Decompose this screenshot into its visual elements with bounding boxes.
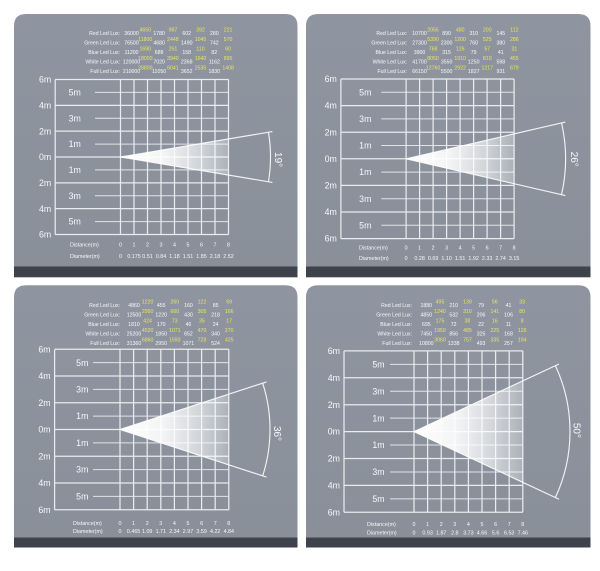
- svg-text:1m: 1m: [372, 440, 384, 450]
- svg-text:Blue Led Lux:: Blue Led Lux:: [88, 322, 120, 328]
- svg-text:5m: 5m: [69, 88, 81, 98]
- svg-text:4m: 4m: [39, 204, 51, 214]
- svg-text:Blue Led Lux:: Blue Led Lux:: [380, 322, 412, 328]
- svg-text:7: 7: [508, 522, 511, 528]
- svg-text:6m: 6m: [38, 505, 50, 515]
- svg-text:3m: 3m: [69, 191, 81, 201]
- svg-text:425: 425: [225, 338, 234, 344]
- svg-text:3.73: 3.73: [463, 530, 473, 536]
- svg-text:0m: 0m: [328, 427, 340, 437]
- svg-text:210: 210: [449, 303, 458, 309]
- svg-text:2535: 2535: [195, 66, 207, 72]
- svg-text:221: 221: [224, 28, 233, 34]
- svg-text:35: 35: [199, 319, 205, 325]
- svg-text:4: 4: [467, 522, 470, 528]
- svg-text:4m: 4m: [38, 478, 50, 488]
- svg-text:1240: 1240: [434, 309, 446, 315]
- svg-text:2.52: 2.52: [223, 254, 233, 260]
- svg-text:2m: 2m: [38, 451, 50, 461]
- svg-text:218: 218: [211, 312, 220, 318]
- svg-text:931: 931: [496, 69, 505, 75]
- svg-text:2300: 2300: [441, 40, 453, 46]
- svg-text:2m: 2m: [328, 454, 340, 464]
- svg-text:0.175: 0.175: [127, 254, 140, 260]
- svg-text:11050: 11050: [152, 69, 166, 75]
- svg-text:455: 455: [510, 56, 519, 62]
- svg-text:2m: 2m: [325, 127, 337, 137]
- svg-text:Blue Led Lux:: Blue Led Lux:: [375, 50, 407, 56]
- svg-text:4860: 4860: [128, 303, 140, 309]
- svg-text:White Led Lux:: White Led Lux:: [377, 331, 412, 337]
- svg-text:139: 139: [463, 300, 472, 306]
- svg-text:524: 524: [211, 341, 220, 347]
- svg-text:3: 3: [159, 521, 162, 527]
- svg-text:1m: 1m: [359, 167, 371, 177]
- svg-text:0.69: 0.69: [428, 256, 438, 262]
- svg-text:3.15: 3.15: [509, 256, 519, 262]
- svg-text:5m: 5m: [359, 87, 371, 97]
- svg-text:1.51: 1.51: [455, 256, 465, 262]
- svg-text:Blue Led Lux:: Blue Led Lux:: [88, 50, 120, 56]
- svg-text:24: 24: [213, 322, 219, 328]
- svg-text:66150: 66150: [412, 69, 427, 75]
- svg-text:170: 170: [157, 322, 166, 328]
- svg-text:8: 8: [521, 319, 524, 325]
- svg-text:1830: 1830: [209, 69, 221, 75]
- svg-text:4m: 4m: [325, 207, 337, 217]
- svg-text:4: 4: [459, 245, 462, 251]
- svg-text:46: 46: [186, 322, 192, 328]
- svg-text:1593: 1593: [169, 338, 181, 344]
- svg-text:598: 598: [496, 59, 505, 65]
- svg-text:Diameter(m): Diameter(m): [367, 530, 397, 536]
- svg-text:7: 7: [499, 245, 502, 251]
- svg-text:5: 5: [187, 243, 190, 249]
- svg-text:1.51: 1.51: [183, 254, 193, 260]
- svg-text:1162: 1162: [209, 59, 220, 65]
- svg-text:2.74: 2.74: [495, 256, 505, 262]
- svg-text:Red Led Lux:: Red Led Lux:: [89, 303, 120, 309]
- svg-text:6.53: 6.53: [504, 530, 514, 536]
- svg-text:760: 760: [469, 40, 478, 46]
- svg-text:679: 679: [510, 66, 519, 72]
- svg-text:Distance(m): Distance(m): [367, 522, 396, 528]
- svg-text:495: 495: [436, 300, 445, 306]
- svg-text:2: 2: [440, 522, 443, 528]
- svg-text:0.84: 0.84: [156, 254, 166, 260]
- svg-text:688: 688: [155, 50, 164, 56]
- svg-text:4.66: 4.66: [477, 530, 487, 536]
- svg-text:5390: 5390: [427, 37, 439, 43]
- svg-text:0: 0: [119, 521, 122, 527]
- svg-text:1690: 1690: [140, 47, 152, 53]
- svg-text:1: 1: [132, 521, 135, 527]
- svg-text:85: 85: [213, 303, 219, 309]
- svg-text:Distance(m): Distance(m): [73, 521, 102, 527]
- svg-text:1.09: 1.09: [142, 529, 152, 535]
- svg-text:1910: 1910: [454, 56, 466, 62]
- svg-text:4: 4: [173, 521, 176, 527]
- svg-text:Red Led Lux:: Red Led Lux:: [381, 303, 412, 309]
- svg-text:251: 251: [169, 47, 178, 53]
- svg-text:2m: 2m: [39, 126, 51, 136]
- svg-text:5: 5: [187, 521, 190, 527]
- svg-text:987: 987: [169, 28, 178, 34]
- svg-text:3.59: 3.59: [196, 529, 206, 535]
- svg-text:2055: 2055: [427, 28, 439, 34]
- svg-text:4.22: 4.22: [210, 529, 220, 535]
- svg-text:6860: 6860: [142, 338, 154, 344]
- svg-text:7.46: 7.46: [518, 530, 528, 536]
- svg-text:1m: 1m: [69, 165, 81, 175]
- svg-text:0.51: 0.51: [142, 254, 152, 260]
- svg-text:3m: 3m: [359, 194, 371, 204]
- svg-text:8: 8: [521, 522, 524, 528]
- svg-text:5500: 5500: [441, 69, 453, 75]
- svg-text:3m: 3m: [76, 384, 88, 394]
- svg-text:742: 742: [210, 40, 219, 46]
- svg-text:430: 430: [184, 312, 193, 318]
- svg-text:325: 325: [477, 331, 486, 337]
- svg-text:18000: 18000: [138, 56, 153, 62]
- svg-text:1m: 1m: [69, 139, 81, 149]
- svg-text:305: 305: [198, 309, 207, 315]
- svg-text:6m: 6m: [328, 346, 340, 356]
- svg-text:280: 280: [210, 31, 219, 37]
- svg-text:2.34: 2.34: [169, 529, 179, 535]
- svg-text:4650: 4650: [140, 28, 152, 34]
- svg-text:1071: 1071: [183, 341, 195, 347]
- svg-text:0m: 0m: [325, 154, 337, 164]
- svg-text:76500: 76500: [124, 40, 139, 46]
- svg-text:315: 315: [442, 50, 451, 56]
- svg-text:1780: 1780: [153, 31, 165, 37]
- svg-text:0.465: 0.465: [127, 529, 140, 535]
- svg-text:6m: 6m: [325, 234, 337, 244]
- svg-text:2m: 2m: [325, 181, 337, 191]
- svg-text:82: 82: [211, 50, 217, 56]
- svg-text:106: 106: [504, 312, 513, 318]
- svg-text:60: 60: [225, 47, 231, 53]
- svg-text:3900: 3900: [414, 50, 426, 56]
- svg-text:5m: 5m: [76, 358, 88, 368]
- svg-text:1m: 1m: [359, 141, 371, 151]
- svg-text:6: 6: [200, 243, 203, 249]
- svg-text:757: 757: [463, 338, 472, 344]
- svg-text:270: 270: [225, 328, 234, 334]
- svg-text:4520: 4520: [142, 328, 154, 334]
- svg-text:6m: 6m: [325, 74, 337, 84]
- svg-text:8: 8: [227, 243, 230, 249]
- svg-text:141: 141: [490, 309, 499, 315]
- svg-text:5m: 5m: [69, 217, 81, 227]
- svg-text:1045: 1045: [195, 37, 207, 43]
- svg-text:41700: 41700: [412, 59, 427, 65]
- svg-text:166: 166: [225, 309, 234, 315]
- svg-text:145: 145: [496, 31, 505, 37]
- svg-text:532: 532: [449, 312, 458, 318]
- svg-text:660: 660: [170, 309, 179, 315]
- svg-text:485: 485: [463, 328, 472, 334]
- svg-text:White Led Lux:: White Led Lux:: [85, 59, 120, 65]
- svg-text:41: 41: [506, 303, 512, 309]
- svg-text:27300: 27300: [412, 40, 427, 46]
- svg-text:2m: 2m: [39, 178, 51, 188]
- svg-text:570: 570: [224, 37, 233, 43]
- svg-text:4.84: 4.84: [224, 529, 234, 535]
- svg-text:0: 0: [413, 522, 416, 528]
- svg-text:1338: 1338: [448, 341, 460, 347]
- svg-text:31360: 31360: [127, 341, 142, 347]
- svg-text:122: 122: [198, 300, 207, 306]
- svg-text:1850: 1850: [155, 331, 167, 337]
- svg-text:2.18: 2.18: [210, 254, 220, 260]
- svg-text:69: 69: [226, 300, 232, 306]
- svg-text:11800: 11800: [138, 37, 152, 43]
- svg-text:110: 110: [196, 47, 204, 53]
- svg-text:856: 856: [449, 331, 458, 337]
- svg-text:3m: 3m: [372, 386, 384, 396]
- svg-text:158: 158: [182, 50, 191, 56]
- svg-text:335: 335: [490, 338, 499, 344]
- svg-text:1827: 1827: [468, 69, 480, 75]
- svg-text:7: 7: [214, 521, 217, 527]
- svg-text:2.8: 2.8: [451, 530, 458, 536]
- svg-text:1.18: 1.18: [169, 254, 179, 260]
- svg-text:392: 392: [196, 28, 205, 34]
- svg-text:4m: 4m: [328, 481, 340, 491]
- svg-text:Green Led Lux:: Green Led Lux:: [84, 312, 120, 318]
- svg-text:8: 8: [513, 245, 516, 251]
- svg-text:19°: 19°: [272, 152, 283, 167]
- svg-text:57: 57: [484, 47, 490, 53]
- svg-text:5m: 5m: [76, 491, 88, 501]
- svg-text:493: 493: [477, 341, 486, 347]
- svg-text:2m: 2m: [38, 398, 50, 408]
- svg-text:8: 8: [227, 521, 230, 527]
- svg-text:2448: 2448: [167, 37, 179, 43]
- svg-text:5.6: 5.6: [492, 530, 499, 536]
- svg-text:225: 225: [490, 328, 499, 334]
- svg-text:79: 79: [478, 303, 484, 309]
- svg-text:1200: 1200: [454, 37, 466, 43]
- svg-text:602: 602: [182, 31, 191, 37]
- svg-text:3652: 3652: [181, 69, 193, 75]
- svg-text:1.87: 1.87: [436, 530, 446, 536]
- svg-text:6m: 6m: [328, 507, 340, 517]
- svg-text:1m: 1m: [76, 411, 88, 421]
- svg-text:525: 525: [483, 37, 492, 43]
- svg-text:22: 22: [478, 322, 484, 328]
- svg-text:1640: 1640: [195, 56, 207, 62]
- svg-text:25200: 25200: [127, 331, 142, 337]
- svg-text:1: 1: [418, 245, 421, 251]
- svg-text:5: 5: [481, 522, 484, 528]
- svg-text:0: 0: [119, 243, 122, 249]
- svg-text:7450: 7450: [421, 331, 433, 337]
- svg-text:2368: 2368: [181, 59, 193, 65]
- svg-text:Diameter(m): Diameter(m): [73, 529, 103, 535]
- svg-text:Red Led Lux:: Red Led Lux:: [376, 31, 407, 37]
- svg-text:2950: 2950: [142, 309, 154, 315]
- svg-text:5: 5: [472, 245, 475, 251]
- svg-text:2922: 2922: [454, 66, 466, 72]
- svg-text:200: 200: [483, 28, 492, 34]
- svg-text:340: 340: [211, 331, 220, 337]
- svg-text:1250: 1250: [468, 59, 480, 65]
- svg-text:5m: 5m: [359, 220, 371, 230]
- svg-text:1.10: 1.10: [441, 256, 451, 262]
- svg-text:6m: 6m: [39, 230, 51, 240]
- svg-text:4: 4: [173, 243, 176, 249]
- svg-text:4680: 4680: [153, 40, 165, 46]
- svg-text:7020: 7020: [153, 59, 165, 65]
- svg-text:Full Led Lux:: Full Led Lux:: [377, 69, 407, 75]
- svg-text:168: 168: [504, 331, 513, 337]
- svg-text:79: 79: [471, 50, 477, 56]
- svg-text:2.97: 2.97: [183, 529, 193, 535]
- svg-text:3m: 3m: [69, 113, 81, 123]
- svg-text:72: 72: [451, 322, 457, 328]
- svg-text:2: 2: [432, 245, 435, 251]
- svg-text:1220: 1220: [155, 312, 167, 318]
- svg-text:Diameter(m): Diameter(m): [70, 254, 100, 260]
- svg-text:160: 160: [184, 303, 193, 309]
- svg-text:4m: 4m: [325, 101, 337, 111]
- svg-text:3060: 3060: [434, 338, 446, 344]
- svg-text:Diameter(m): Diameter(m): [359, 256, 389, 262]
- svg-text:310: 310: [469, 31, 478, 37]
- svg-text:1810: 1810: [128, 322, 140, 328]
- svg-text:0.28: 0.28: [414, 256, 424, 262]
- svg-text:6: 6: [494, 522, 497, 528]
- svg-text:728: 728: [198, 338, 207, 344]
- svg-text:3m: 3m: [372, 467, 384, 477]
- svg-text:260: 260: [170, 300, 179, 306]
- svg-text:Full Led Lux:: Full Led Lux:: [90, 341, 120, 347]
- svg-text:1m: 1m: [372, 413, 384, 423]
- svg-text:695: 695: [422, 322, 431, 328]
- svg-text:4m: 4m: [39, 100, 51, 110]
- svg-text:White Led Lux:: White Led Lux:: [85, 331, 120, 337]
- svg-text:0: 0: [119, 254, 122, 260]
- svg-text:3940: 3940: [167, 56, 179, 62]
- svg-text:2m: 2m: [328, 400, 340, 410]
- svg-text:31: 31: [511, 47, 517, 53]
- svg-text:73: 73: [172, 319, 178, 325]
- svg-text:206: 206: [477, 312, 486, 318]
- svg-text:2: 2: [146, 521, 149, 527]
- svg-text:Green Led Lux:: Green Led Lux:: [84, 40, 120, 46]
- svg-text:11: 11: [506, 322, 511, 328]
- svg-text:36°: 36°: [271, 426, 282, 441]
- svg-text:Distance(m): Distance(m): [359, 245, 388, 251]
- svg-text:1m: 1m: [76, 438, 88, 448]
- svg-text:310: 310: [463, 309, 472, 315]
- svg-text:2.33: 2.33: [482, 256, 492, 262]
- svg-text:480: 480: [456, 28, 465, 34]
- svg-text:80: 80: [519, 309, 525, 315]
- svg-text:1220: 1220: [142, 300, 154, 306]
- svg-text:380: 380: [496, 40, 505, 46]
- svg-text:0.93: 0.93: [422, 530, 432, 536]
- svg-text:3: 3: [160, 243, 163, 249]
- svg-text:2950: 2950: [155, 341, 167, 347]
- svg-text:Full Led Lux:: Full Led Lux:: [382, 341, 412, 347]
- svg-text:56: 56: [492, 300, 498, 306]
- svg-text:Full Led Lux:: Full Led Lux:: [90, 69, 120, 75]
- svg-text:6m: 6m: [38, 344, 50, 354]
- svg-text:50°: 50°: [571, 423, 582, 438]
- svg-text:175: 175: [436, 319, 445, 325]
- svg-text:0m: 0m: [38, 425, 50, 435]
- svg-text:36000: 36000: [124, 31, 139, 37]
- svg-text:194: 194: [518, 338, 527, 344]
- svg-text:810: 810: [483, 56, 492, 62]
- svg-text:1: 1: [133, 243, 136, 249]
- svg-text:12760: 12760: [426, 66, 441, 72]
- svg-text:4m: 4m: [328, 373, 340, 383]
- svg-text:6m: 6m: [39, 75, 51, 85]
- svg-text:7: 7: [214, 243, 217, 249]
- svg-text:455: 455: [157, 303, 166, 309]
- svg-text:652: 652: [184, 331, 193, 337]
- svg-text:3550: 3550: [441, 59, 453, 65]
- svg-text:0: 0: [119, 529, 122, 535]
- svg-text:8050: 8050: [427, 56, 439, 62]
- svg-text:3: 3: [453, 522, 456, 528]
- svg-text:Green Led Lux:: Green Led Lux:: [371, 40, 407, 46]
- svg-text:Red Led Lux:: Red Led Lux:: [89, 31, 120, 37]
- svg-text:12500: 12500: [127, 312, 142, 318]
- svg-text:0: 0: [405, 256, 408, 262]
- svg-text:1880: 1880: [421, 303, 433, 309]
- svg-text:41: 41: [498, 50, 504, 56]
- svg-text:2: 2: [146, 243, 149, 249]
- svg-text:4850: 4850: [421, 312, 433, 318]
- svg-text:5m: 5m: [372, 494, 384, 504]
- svg-text:1.71: 1.71: [156, 529, 166, 535]
- svg-text:6: 6: [486, 245, 489, 251]
- svg-text:470: 470: [198, 328, 207, 334]
- svg-text:16: 16: [492, 319, 498, 325]
- svg-text:11200: 11200: [124, 50, 138, 56]
- svg-text:126: 126: [518, 328, 527, 334]
- svg-text:895: 895: [224, 56, 233, 62]
- svg-text:10800: 10800: [419, 341, 434, 347]
- svg-text:1950: 1950: [434, 328, 446, 334]
- svg-text:768: 768: [429, 47, 438, 53]
- svg-text:38: 38: [465, 319, 471, 325]
- svg-text:1.92: 1.92: [468, 256, 478, 262]
- svg-text:126: 126: [456, 47, 465, 53]
- svg-text:1.85: 1.85: [196, 254, 206, 260]
- svg-text:Green Led Lux:: Green Led Lux:: [376, 312, 412, 318]
- svg-text:0m: 0m: [39, 152, 51, 162]
- svg-text:424: 424: [143, 319, 152, 325]
- svg-text:1408: 1408: [222, 66, 234, 72]
- svg-text:17: 17: [226, 319, 232, 325]
- svg-text:0: 0: [405, 245, 408, 251]
- svg-text:3: 3: [445, 245, 448, 251]
- svg-text:1: 1: [426, 522, 429, 528]
- svg-text:28800: 28800: [138, 66, 153, 72]
- svg-text:6041: 6041: [167, 66, 179, 72]
- svg-text:257: 257: [504, 341, 513, 347]
- svg-text:1071: 1071: [169, 328, 181, 334]
- svg-text:Distance(m): Distance(m): [70, 243, 99, 249]
- svg-text:1490: 1490: [181, 40, 193, 46]
